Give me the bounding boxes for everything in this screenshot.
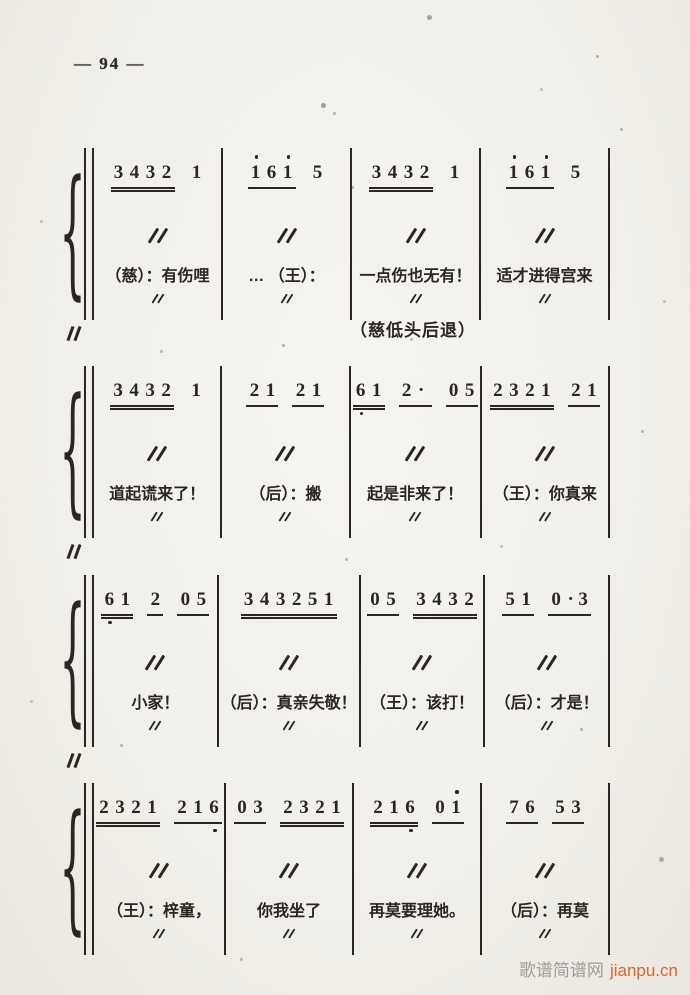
repeat-ditto-icon bbox=[149, 293, 165, 304]
note-digit: 1 bbox=[521, 589, 531, 611]
note-digit: 5 bbox=[571, 162, 581, 184]
system-brace-icon: { bbox=[62, 575, 84, 747]
note-digit: 2 bbox=[420, 162, 430, 184]
music-system: {61205小家！343251（后）：真亲失敬！053432（王）：该打！510… bbox=[62, 575, 610, 747]
note-group: 5 bbox=[568, 162, 584, 187]
lyric-repeat-row bbox=[356, 925, 478, 947]
note-group: 0·3 bbox=[548, 589, 591, 616]
note-digit: 1 bbox=[372, 380, 382, 402]
repeat-ditto-icon bbox=[414, 720, 430, 731]
note-digit: 5 bbox=[505, 589, 515, 611]
note-digit: 2 bbox=[177, 797, 187, 819]
lyric-text: （后）：真亲失敬！ bbox=[221, 689, 357, 713]
note-digit: 3 bbox=[372, 162, 382, 184]
note-digit: 1 bbox=[120, 589, 130, 611]
lyric-row: （王）：该打！ bbox=[363, 685, 482, 717]
lyric-repeat-row bbox=[484, 925, 606, 947]
repeat-ditto-icon bbox=[278, 293, 294, 304]
note-digit: 1 bbox=[283, 162, 293, 184]
note-digit: 1 bbox=[191, 380, 201, 402]
note-group: 51 bbox=[502, 589, 534, 616]
note-digit: 6 bbox=[209, 797, 219, 819]
brace-glyph: { bbox=[60, 153, 86, 315]
note-digit: 1 bbox=[331, 797, 341, 819]
note-digit: 2 bbox=[571, 380, 581, 402]
note-digit: 6 bbox=[267, 162, 277, 184]
note-digit: 2 bbox=[131, 797, 141, 819]
note-digit: 2 bbox=[283, 797, 293, 819]
note-digit: 1 bbox=[324, 589, 334, 611]
note-digit: 3 bbox=[509, 380, 519, 402]
note-digit: 2 bbox=[295, 380, 305, 402]
note-row: 612·05 bbox=[353, 374, 478, 430]
watermark-site-url: jianpu.cn bbox=[610, 961, 678, 980]
lyric-repeat-row bbox=[96, 508, 218, 530]
note-digit: 2 bbox=[525, 380, 535, 402]
stage-direction: （慈低头后退） bbox=[350, 316, 476, 341]
note-digit: 4 bbox=[388, 162, 398, 184]
note-digit: 6 bbox=[356, 380, 366, 402]
note-group: 21 bbox=[246, 380, 278, 407]
note-digit: 3 bbox=[253, 797, 263, 819]
note-digit: 3 bbox=[448, 589, 458, 611]
note-digit: 1 bbox=[450, 162, 460, 184]
note-digit: 1 bbox=[311, 380, 321, 402]
measure-4-2: 032321你我坐了 bbox=[226, 783, 354, 955]
repeat-ditto-icon bbox=[539, 720, 555, 731]
measure-row: 61205小家！343251（后）：真亲失敬！053432（王）：该打！510·… bbox=[84, 575, 610, 747]
lyric-row: 小家！ bbox=[96, 685, 215, 717]
note-row: 2121 bbox=[224, 374, 346, 430]
note-digit: 2 bbox=[464, 589, 474, 611]
percussion-repeat-row bbox=[484, 430, 606, 476]
note-group: 2 bbox=[147, 589, 163, 616]
repeat-ditto-icon bbox=[276, 862, 302, 879]
note-group: 21 bbox=[292, 380, 324, 407]
lyric-repeat-row bbox=[363, 717, 482, 739]
note-digit: 2 bbox=[162, 162, 172, 184]
note-row: 1615 bbox=[225, 156, 348, 212]
note-digit: 5 bbox=[196, 589, 206, 611]
dot-note: · bbox=[567, 589, 574, 611]
note-digit: 3 bbox=[404, 162, 414, 184]
percussion-repeat-row bbox=[228, 847, 350, 893]
repeat-ditto-icon bbox=[537, 928, 553, 939]
note-row: 510·3 bbox=[487, 583, 606, 639]
note-digit: 3 bbox=[299, 797, 309, 819]
note-digit: 5 bbox=[308, 589, 318, 611]
repeat-ditto-icon bbox=[404, 862, 430, 879]
measure-1-1: 34321（慈）：有伤哩 bbox=[94, 148, 223, 320]
note-digit: 3 bbox=[416, 589, 426, 611]
note-digit: 3 bbox=[115, 797, 125, 819]
note-row: 232121 bbox=[484, 374, 606, 430]
note-row: 34321 bbox=[96, 374, 218, 430]
measure-1-2: 1615… （王）： bbox=[223, 148, 352, 320]
note-group: 2321 bbox=[96, 797, 160, 824]
percussion-repeat-row bbox=[96, 639, 215, 685]
lyric-row: 起是非来了！ bbox=[353, 476, 478, 508]
lyric-repeat-row bbox=[96, 290, 219, 312]
lyric-text: （王）：该打！ bbox=[370, 689, 474, 713]
note-row: 34321 bbox=[96, 156, 219, 212]
note-digit: 5 bbox=[465, 380, 475, 402]
repeat-ditto-icon bbox=[534, 654, 560, 671]
repeat-ditto-icon bbox=[277, 511, 293, 522]
music-system: {34321道起谎来了！2121（后）：搬612·05起是非来了！232121（… bbox=[62, 366, 610, 538]
lyric-row: （慈）：有伤哩 bbox=[96, 258, 219, 290]
note-digit: 2 bbox=[161, 380, 171, 402]
lyric-text: … （王）： bbox=[248, 262, 324, 286]
note-digit: 2 bbox=[315, 797, 325, 819]
repeat-ditto-icon bbox=[146, 862, 172, 879]
note-group: 3432 bbox=[111, 162, 175, 189]
note-digit: 3 bbox=[145, 380, 155, 402]
note-digit: 1 bbox=[509, 162, 519, 184]
percussion-repeat-row bbox=[96, 430, 218, 476]
repeat-ditto-icon bbox=[407, 293, 423, 304]
brace-glyph: { bbox=[60, 788, 86, 950]
note-group: 343251 bbox=[241, 589, 337, 616]
scan-noise bbox=[0, 0, 3, 3]
note-digit: 1 bbox=[587, 380, 597, 402]
measure-1-4: 1615适才进得宫来 bbox=[481, 148, 610, 320]
note-digit: 0 bbox=[237, 797, 247, 819]
note-digit: 1 bbox=[451, 797, 461, 819]
lyric-text: 你我坐了 bbox=[257, 897, 321, 921]
note-digit: 2 bbox=[292, 589, 302, 611]
repeat-ditto-icon bbox=[402, 445, 428, 462]
note-digit: 0 bbox=[449, 380, 459, 402]
lyric-text: （王）：你真来 bbox=[493, 480, 597, 504]
note-digit: 1 bbox=[265, 380, 275, 402]
note-group: 61 bbox=[101, 589, 133, 616]
note-digit: 1 bbox=[541, 380, 551, 402]
lyric-row: 适才进得宫来 bbox=[483, 258, 606, 290]
measure-row: 34321道起谎来了！2121（后）：搬612·05起是非来了！232121（王… bbox=[84, 366, 610, 538]
repeat-ditto-icon bbox=[151, 928, 167, 939]
note-row: 21601 bbox=[356, 791, 478, 847]
note-group: 76 bbox=[506, 797, 538, 824]
music-system: {2321216（王）：梓童，032321你我坐了21601再莫要理她。7653… bbox=[62, 783, 610, 955]
lyric-row: （后）：搬 bbox=[224, 476, 346, 508]
note-row: 7653 bbox=[484, 791, 606, 847]
lyric-text: （后）：搬 bbox=[249, 480, 321, 504]
percussion-repeat-row bbox=[221, 639, 357, 685]
lyric-row: （后）：真亲失敬！ bbox=[221, 685, 357, 717]
note-group: 61 bbox=[353, 380, 385, 407]
note-group: 2· bbox=[399, 380, 432, 407]
dot-note: · bbox=[418, 380, 425, 402]
repeat-ditto-icon bbox=[536, 293, 552, 304]
measure-2-3: 612·05起是非来了！ bbox=[351, 366, 482, 538]
repeat-ditto-icon bbox=[403, 227, 429, 244]
measure-2-4: 232121（王）：你真来 bbox=[482, 366, 610, 538]
note-digit: 5 bbox=[555, 797, 565, 819]
lyric-text: 起是非来了！ bbox=[367, 480, 463, 504]
scanned-score-page: — 94 — {34321（慈）：有伤哩1615… （王）：34321一点伤也无… bbox=[0, 0, 690, 995]
note-group: 3432 bbox=[413, 589, 477, 616]
note-digit: 0 bbox=[180, 589, 190, 611]
lyric-text: （后）：才是！ bbox=[495, 689, 599, 713]
note-group: 05 bbox=[177, 589, 209, 616]
note-group: 3432 bbox=[110, 380, 174, 407]
note-group: 216 bbox=[174, 797, 222, 824]
note-digit: 4 bbox=[432, 589, 442, 611]
note-group: 2321 bbox=[490, 380, 554, 407]
note-group: 3432 bbox=[369, 162, 433, 189]
note-digit: 5 bbox=[386, 589, 396, 611]
measure-4-3: 21601再莫要理她。 bbox=[354, 783, 482, 955]
note-digit: 3 bbox=[571, 797, 581, 819]
lyric-repeat-row bbox=[353, 508, 478, 530]
lyric-row: … （王）： bbox=[225, 258, 348, 290]
note-digit: 1 bbox=[251, 162, 261, 184]
system-brace-icon: { bbox=[62, 148, 84, 320]
note-row: 053432 bbox=[363, 583, 482, 639]
measure-row: 2321216（王）：梓童，032321你我坐了21601再莫要理她。7653（… bbox=[84, 783, 610, 955]
measure-3-4: 510·3（后）：才是！ bbox=[485, 575, 610, 747]
repeat-ditto-icon bbox=[281, 928, 297, 939]
note-digit: 1 bbox=[147, 797, 157, 819]
note-digit: 6 bbox=[525, 162, 535, 184]
lyric-repeat-row bbox=[96, 925, 222, 947]
lyric-repeat-row bbox=[96, 717, 215, 739]
note-digit: 3 bbox=[113, 380, 123, 402]
note-digit: 2 bbox=[99, 797, 109, 819]
note-digit: 1 bbox=[192, 162, 202, 184]
system-brace-icon: { bbox=[62, 783, 84, 955]
repeat-ditto-icon bbox=[409, 654, 435, 671]
percussion-repeat-row bbox=[487, 639, 606, 685]
note-group: 161 bbox=[248, 162, 296, 189]
measure-row: 34321（慈）：有伤哩1615… （王）：34321一点伤也无有！1615适才… bbox=[84, 148, 610, 320]
lyric-repeat-row bbox=[487, 717, 606, 739]
percussion-repeat-row bbox=[356, 847, 478, 893]
note-group: 03 bbox=[234, 797, 266, 824]
system-brace-icon: { bbox=[62, 366, 84, 538]
note-digit: 1 bbox=[541, 162, 551, 184]
note-group: 1 bbox=[189, 162, 205, 187]
lyric-repeat-row bbox=[484, 508, 606, 530]
note-digit: 2 bbox=[493, 380, 503, 402]
note-digit: 6 bbox=[104, 589, 114, 611]
lyric-repeat-row bbox=[225, 290, 348, 312]
percussion-repeat-row bbox=[353, 430, 478, 476]
percussion-repeat-row bbox=[96, 847, 222, 893]
note-digit: 0 bbox=[435, 797, 445, 819]
note-row: 34321 bbox=[354, 156, 477, 212]
system-end-repeat-icon bbox=[66, 544, 82, 559]
lyric-text: （王）：梓童， bbox=[107, 897, 211, 921]
system-end-repeat-icon bbox=[66, 753, 82, 768]
lyric-repeat-row bbox=[483, 290, 606, 312]
note-digit: 6 bbox=[405, 797, 415, 819]
note-digit: 0 bbox=[551, 589, 561, 611]
note-row: 2321216 bbox=[96, 791, 222, 847]
measure-3-3: 053432（王）：该打！ bbox=[361, 575, 486, 747]
measure-1-3: 34321一点伤也无有！ bbox=[352, 148, 481, 320]
percussion-repeat-row bbox=[363, 639, 482, 685]
repeat-ditto-icon bbox=[537, 511, 553, 522]
note-row: 032321 bbox=[228, 791, 350, 847]
note-row: 343251 bbox=[221, 583, 357, 639]
watermark-site-name: 歌谱简谱网 bbox=[519, 961, 604, 980]
lyric-text: 道起谎来了！ bbox=[109, 480, 205, 504]
page-number: — 94 — bbox=[74, 54, 146, 74]
lyric-text: 一点伤也无有！ bbox=[359, 262, 471, 286]
note-group: 2321 bbox=[280, 797, 344, 824]
note-group: 21 bbox=[568, 380, 600, 407]
repeat-ditto-icon bbox=[276, 654, 302, 671]
lyric-row: （后）：再莫 bbox=[484, 893, 606, 925]
note-group: 53 bbox=[552, 797, 584, 824]
note-digit: 1 bbox=[389, 797, 399, 819]
measure-3-1: 61205小家！ bbox=[94, 575, 219, 747]
repeat-ditto-icon bbox=[272, 445, 298, 462]
percussion-repeat-row bbox=[96, 212, 219, 258]
lyric-text: 适才进得宫来 bbox=[496, 262, 592, 286]
repeat-ditto-icon bbox=[274, 227, 300, 244]
note-group: 216 bbox=[370, 797, 418, 824]
measure-4-4: 7653（后）：再莫 bbox=[482, 783, 610, 955]
note-digit: 3 bbox=[244, 589, 254, 611]
brace-glyph: { bbox=[60, 580, 86, 742]
measure-2-1: 34321道起谎来了！ bbox=[94, 366, 222, 538]
lyric-row: （王）：梓童， bbox=[96, 893, 222, 925]
system-end-repeat-icon bbox=[66, 326, 82, 341]
note-digit: 3 bbox=[578, 589, 588, 611]
note-digit: 2 bbox=[150, 589, 160, 611]
brace-glyph: { bbox=[60, 371, 86, 533]
lyric-text: 小家！ bbox=[131, 689, 179, 713]
note-group: 161 bbox=[506, 162, 554, 189]
repeat-ditto-icon bbox=[409, 928, 425, 939]
percussion-repeat-row bbox=[484, 847, 606, 893]
note-group: 05 bbox=[446, 380, 478, 407]
lyric-row: 你我坐了 bbox=[228, 893, 350, 925]
lyric-repeat-row bbox=[228, 925, 350, 947]
percussion-repeat-row bbox=[354, 212, 477, 258]
note-group: 5 bbox=[310, 162, 326, 187]
lyric-row: 一点伤也无有！ bbox=[354, 258, 477, 290]
lyric-text: （后）：再莫 bbox=[501, 897, 589, 921]
note-digit: 2 bbox=[402, 380, 412, 402]
repeat-ditto-icon bbox=[407, 511, 423, 522]
note-digit: 4 bbox=[130, 162, 140, 184]
note-digit: 0 bbox=[370, 589, 380, 611]
lyric-text: 再莫要理她。 bbox=[369, 897, 465, 921]
lyric-repeat-row bbox=[354, 290, 477, 312]
repeat-ditto-icon bbox=[149, 511, 165, 522]
note-digit: 3 bbox=[276, 589, 286, 611]
note-row: 1615 bbox=[483, 156, 606, 212]
watermark: 歌谱简谱网jianpu.cn bbox=[519, 956, 678, 981]
repeat-ditto-icon bbox=[532, 227, 558, 244]
note-digit: 3 bbox=[146, 162, 156, 184]
lyric-row: 道起谎来了！ bbox=[96, 476, 218, 508]
note-digit: 4 bbox=[129, 380, 139, 402]
note-digit: 1 bbox=[193, 797, 203, 819]
note-digit: 2 bbox=[373, 797, 383, 819]
measure-2-2: 2121（后）：搬 bbox=[222, 366, 350, 538]
note-group: 1 bbox=[447, 162, 463, 187]
music-system: {34321（慈）：有伤哩1615… （王）：34321一点伤也无有！1615适… bbox=[62, 148, 610, 320]
lyric-repeat-row bbox=[221, 717, 357, 739]
lyric-text: （慈）：有伤哩 bbox=[105, 262, 209, 286]
note-digit: 6 bbox=[525, 797, 535, 819]
note-digit: 7 bbox=[509, 797, 519, 819]
repeat-ditto-icon bbox=[142, 654, 168, 671]
lyric-row: （后）：才是！ bbox=[487, 685, 606, 717]
measure-3-2: 343251（后）：真亲失敬！ bbox=[219, 575, 361, 747]
note-digit: 2 bbox=[249, 380, 259, 402]
repeat-ditto-icon bbox=[532, 862, 558, 879]
repeat-ditto-icon bbox=[144, 445, 170, 462]
lyric-row: （王）：你真来 bbox=[484, 476, 606, 508]
note-group: 01 bbox=[432, 797, 464, 824]
lyric-row: 再莫要理她。 bbox=[356, 893, 478, 925]
repeat-ditto-icon bbox=[145, 227, 171, 244]
note-group: 05 bbox=[367, 589, 399, 616]
repeat-ditto-icon bbox=[532, 445, 558, 462]
note-digit: 4 bbox=[260, 589, 270, 611]
repeat-ditto-icon bbox=[147, 720, 163, 731]
note-group: 1 bbox=[188, 380, 204, 405]
note-digit: 5 bbox=[313, 162, 323, 184]
note-digit: 3 bbox=[114, 162, 124, 184]
percussion-repeat-row bbox=[225, 212, 348, 258]
note-row: 61205 bbox=[96, 583, 215, 639]
repeat-ditto-icon bbox=[281, 720, 297, 731]
percussion-repeat-row bbox=[483, 212, 606, 258]
lyric-repeat-row bbox=[224, 508, 346, 530]
percussion-repeat-row bbox=[224, 430, 346, 476]
measure-4-1: 2321216（王）：梓童， bbox=[94, 783, 226, 955]
